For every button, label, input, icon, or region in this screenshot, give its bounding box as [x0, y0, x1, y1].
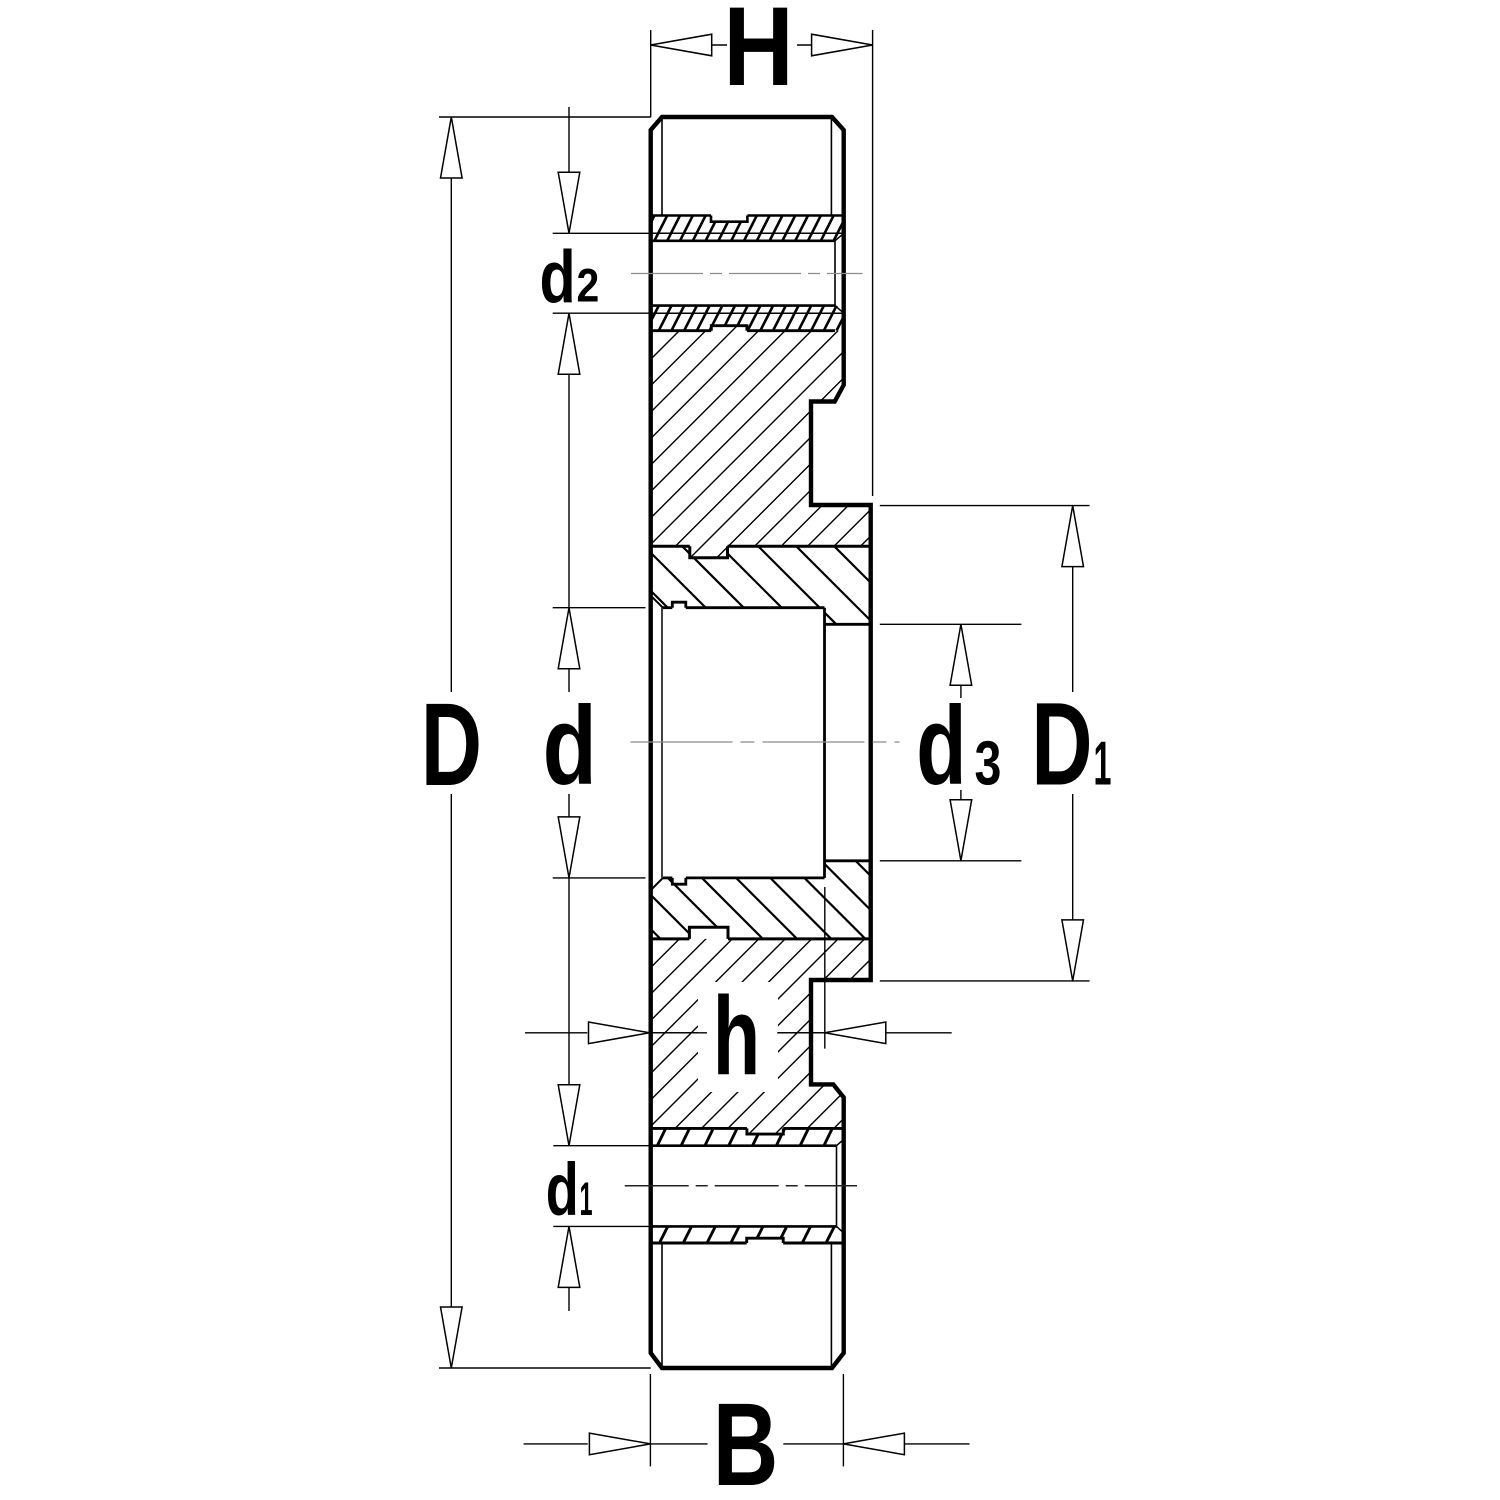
svg-text:1: 1	[580, 1172, 593, 1225]
svg-text:d: d	[543, 685, 597, 809]
svg-text:1: 1	[1094, 729, 1112, 798]
svg-text:2: 2	[577, 260, 600, 312]
svg-text:D: D	[1031, 678, 1092, 810]
svg-text:d: d	[916, 684, 966, 808]
svg-text:d: d	[540, 236, 576, 319]
svg-text:D: D	[421, 678, 482, 810]
svg-text:h: h	[713, 975, 760, 1099]
svg-text:H: H	[723, 0, 793, 110]
svg-text:3: 3	[975, 729, 1002, 798]
svg-text:d: d	[546, 1147, 579, 1230]
svg-text:B: B	[713, 1380, 779, 1500]
